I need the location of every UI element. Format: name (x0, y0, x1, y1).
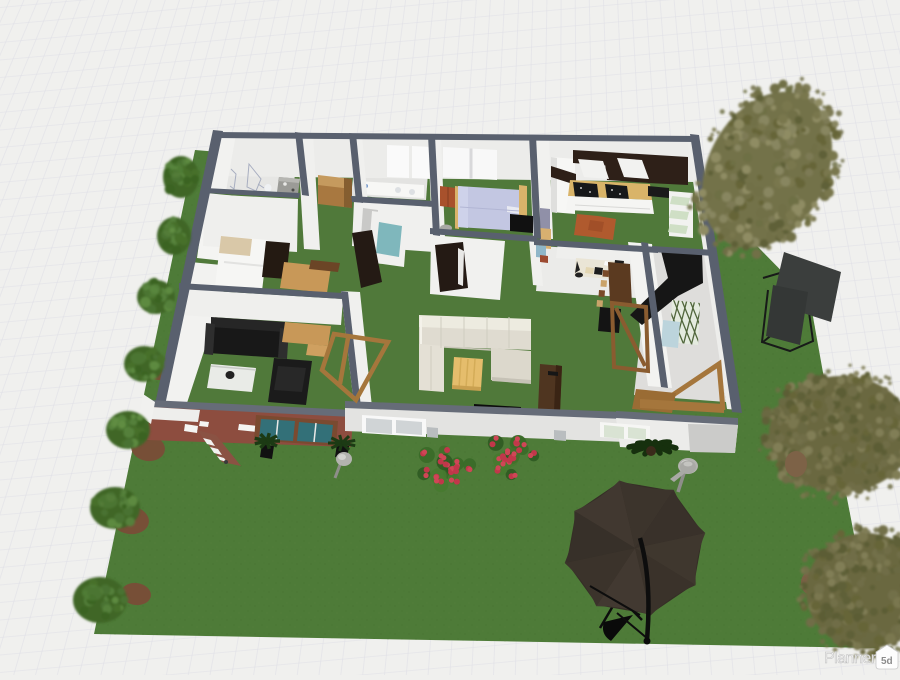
svg-text:5d: 5d (881, 656, 893, 667)
svg-text:Planner: Planner (824, 650, 877, 667)
